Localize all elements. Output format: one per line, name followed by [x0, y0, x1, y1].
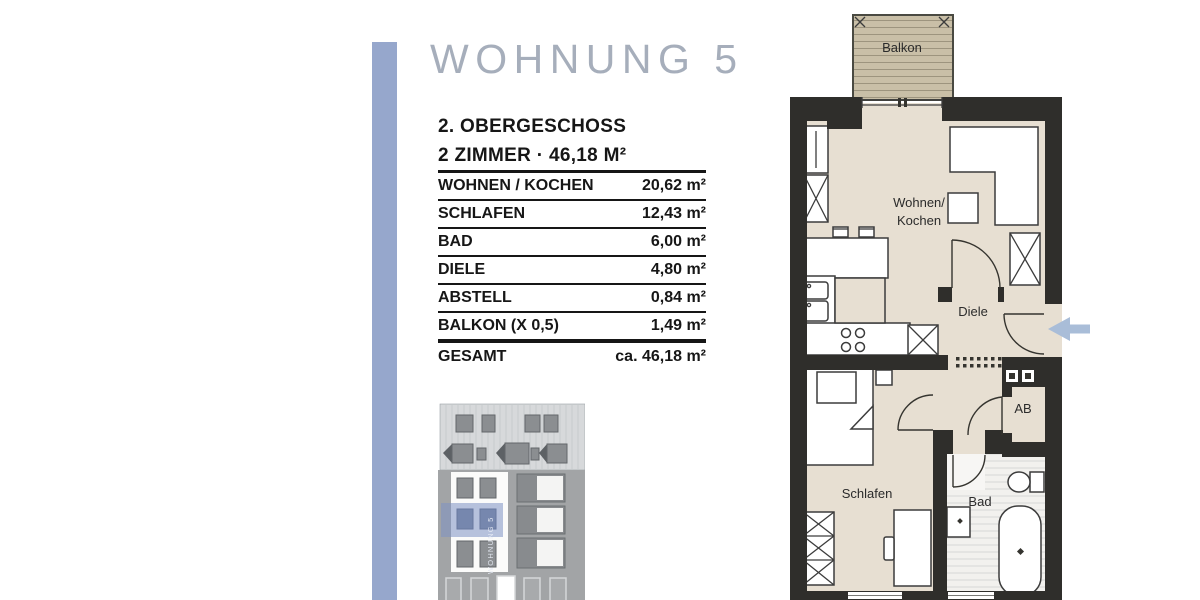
kitchen-sink-icon: [804, 282, 828, 321]
window-bottom-bath: [948, 592, 994, 599]
row-value: 12,43 m²: [642, 205, 706, 223]
table-row: DIELE 4,80 m²: [438, 257, 706, 285]
kitchen-table: [835, 278, 885, 323]
bed: [803, 368, 873, 465]
table-total-row: GESAMT ca. 46,18 m²: [438, 339, 706, 370]
row-value: 4,80 m²: [651, 261, 706, 279]
tall-shelf: [804, 126, 828, 173]
apartment-floor-plan: Balkon: [785, 0, 1095, 600]
table-row: BAD 6,00 m²: [438, 229, 706, 257]
main-facade: WOHNUNG 5: [438, 470, 585, 600]
toilet-icon: [1008, 472, 1044, 492]
page-title: WOHNUNG 5: [430, 36, 744, 83]
row-value: 6,00 m²: [651, 233, 706, 251]
wohnen-label-line1: Wohnen/: [893, 195, 945, 210]
bad-label: Bad: [968, 494, 991, 509]
row-value: 0,84 m²: [651, 289, 706, 307]
diele-label: Diele: [958, 304, 988, 319]
abstell-label: AB: [1014, 401, 1031, 416]
row-value: 1,49 m²: [651, 317, 706, 335]
accent-bar: [372, 42, 397, 600]
total-value: ca. 46,18 m²: [615, 348, 706, 366]
table-row: SCHLAFEN 12,43 m²: [438, 201, 706, 229]
coffee-table: [948, 193, 978, 223]
schlafen-label: Schlafen: [842, 486, 893, 501]
window-bottom-bedroom: [848, 592, 902, 599]
area-table: WOHNEN / KOCHEN 20,62 m² SCHLAFEN 12,43 …: [438, 170, 706, 370]
desk-chair: [884, 537, 894, 560]
rooms-line: 2 ZIMMER · 46,18 M²: [438, 141, 626, 170]
floor-line: 2. OBERGESCHOSS: [438, 112, 626, 141]
hall-wardrobe-icon: [1010, 233, 1040, 285]
table-row: ABSTELL 0,84 m²: [438, 285, 706, 313]
fridge-icon: [908, 325, 938, 355]
neighbor-windows: [517, 474, 565, 568]
row-value: 20,62 m²: [642, 177, 706, 195]
bathtub-icon: [999, 506, 1041, 596]
row-label: WOHNEN / KOCHEN: [438, 177, 594, 195]
row-label: BALKON (X 0,5): [438, 317, 559, 335]
washer-block: [1002, 357, 1045, 387]
attic-storey: [440, 404, 585, 470]
table-row: BALKON (X 0,5) 1,49 m²: [438, 313, 706, 339]
floorplan-page: WOHNUNG 5 2. OBERGESCHOSS 2 ZIMMER · 46,…: [0, 0, 1200, 600]
table-row: WOHNEN / KOCHEN 20,62 m²: [438, 173, 706, 201]
total-label: GESAMT: [438, 348, 506, 366]
row-label: SCHLAFEN: [438, 205, 525, 223]
row-label: ABSTELL: [438, 289, 512, 307]
balcony: Balkon: [853, 15, 953, 100]
row-label: DIELE: [438, 261, 485, 279]
balkon-label: Balkon: [882, 40, 922, 55]
wohnen-label-line2: Kochen: [897, 213, 941, 228]
elevation-vertical-caption: WOHNUNG 5: [486, 517, 495, 574]
building-elevation: WOHNUNG 5: [435, 400, 585, 600]
bath-sink-icon: [947, 507, 970, 537]
nightstand: [876, 370, 892, 385]
apartment-subtitle: 2. OBERGESCHOSS 2 ZIMMER · 46,18 M²: [438, 112, 626, 170]
row-label: BAD: [438, 233, 473, 251]
bedroom-wardrobe-icon: [803, 512, 834, 585]
pillow: [817, 372, 856, 403]
wardrobe-living-icon: [804, 175, 828, 222]
